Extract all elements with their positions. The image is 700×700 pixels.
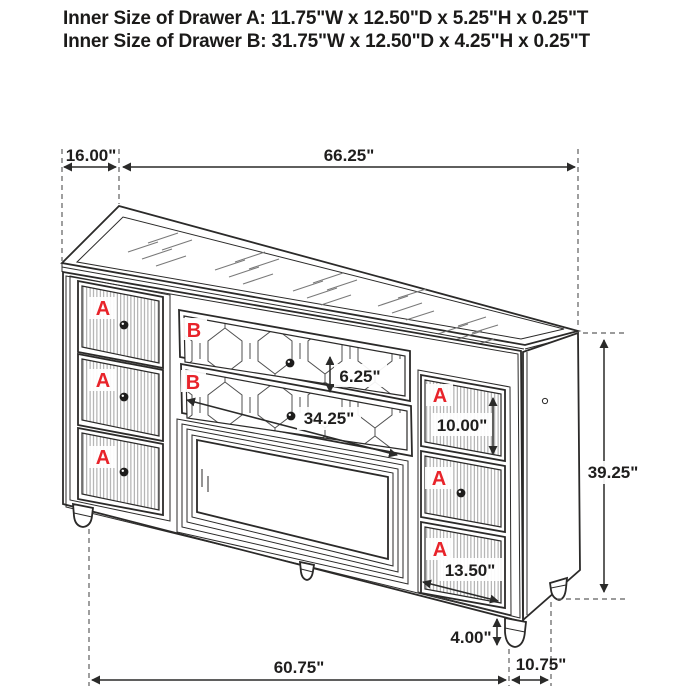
dim-label-leg-height: 4.00" — [450, 628, 491, 647]
drawer-b-label: B — [186, 372, 200, 394]
dim-label-bottom-drawer-height: 13.50" — [445, 561, 496, 580]
drawer-a-label: A — [96, 370, 110, 392]
dim-label-top-depth: 16.00" — [66, 146, 117, 165]
dim-label-drawer-b-width: 34.25" — [304, 409, 355, 428]
dim-label-base-width: 60.75" — [274, 658, 325, 677]
dim-label-drawer-a-height: 10.00" — [437, 416, 488, 435]
drawer-a-label: A — [96, 447, 110, 469]
dim-label-top-width: 66.25" — [324, 146, 375, 165]
dim-label-overall-height: 39.25" — [588, 463, 639, 482]
dresser-drawing: A A A B B — [0, 0, 700, 700]
side-panel — [523, 333, 580, 620]
dim-label-base-depth: 10.75" — [516, 655, 567, 674]
furniture-dimension-diagram: Inner Size of Drawer A: 11.75"W x 12.50"… — [0, 0, 700, 700]
front-right-leg — [505, 618, 526, 647]
drawer-a-label: A — [96, 298, 110, 320]
drawer-knob-icon — [457, 489, 466, 498]
drawer-a-label: A — [433, 539, 447, 561]
dim-label-drawer-b-height: 6.25" — [339, 367, 380, 386]
left-drawer-column: A A A — [70, 276, 170, 521]
drawer-a-label: A — [432, 468, 446, 490]
drawer-b-label: B — [187, 320, 201, 342]
drawer-a-label: A — [433, 385, 447, 407]
side-panel-face — [523, 333, 580, 620]
